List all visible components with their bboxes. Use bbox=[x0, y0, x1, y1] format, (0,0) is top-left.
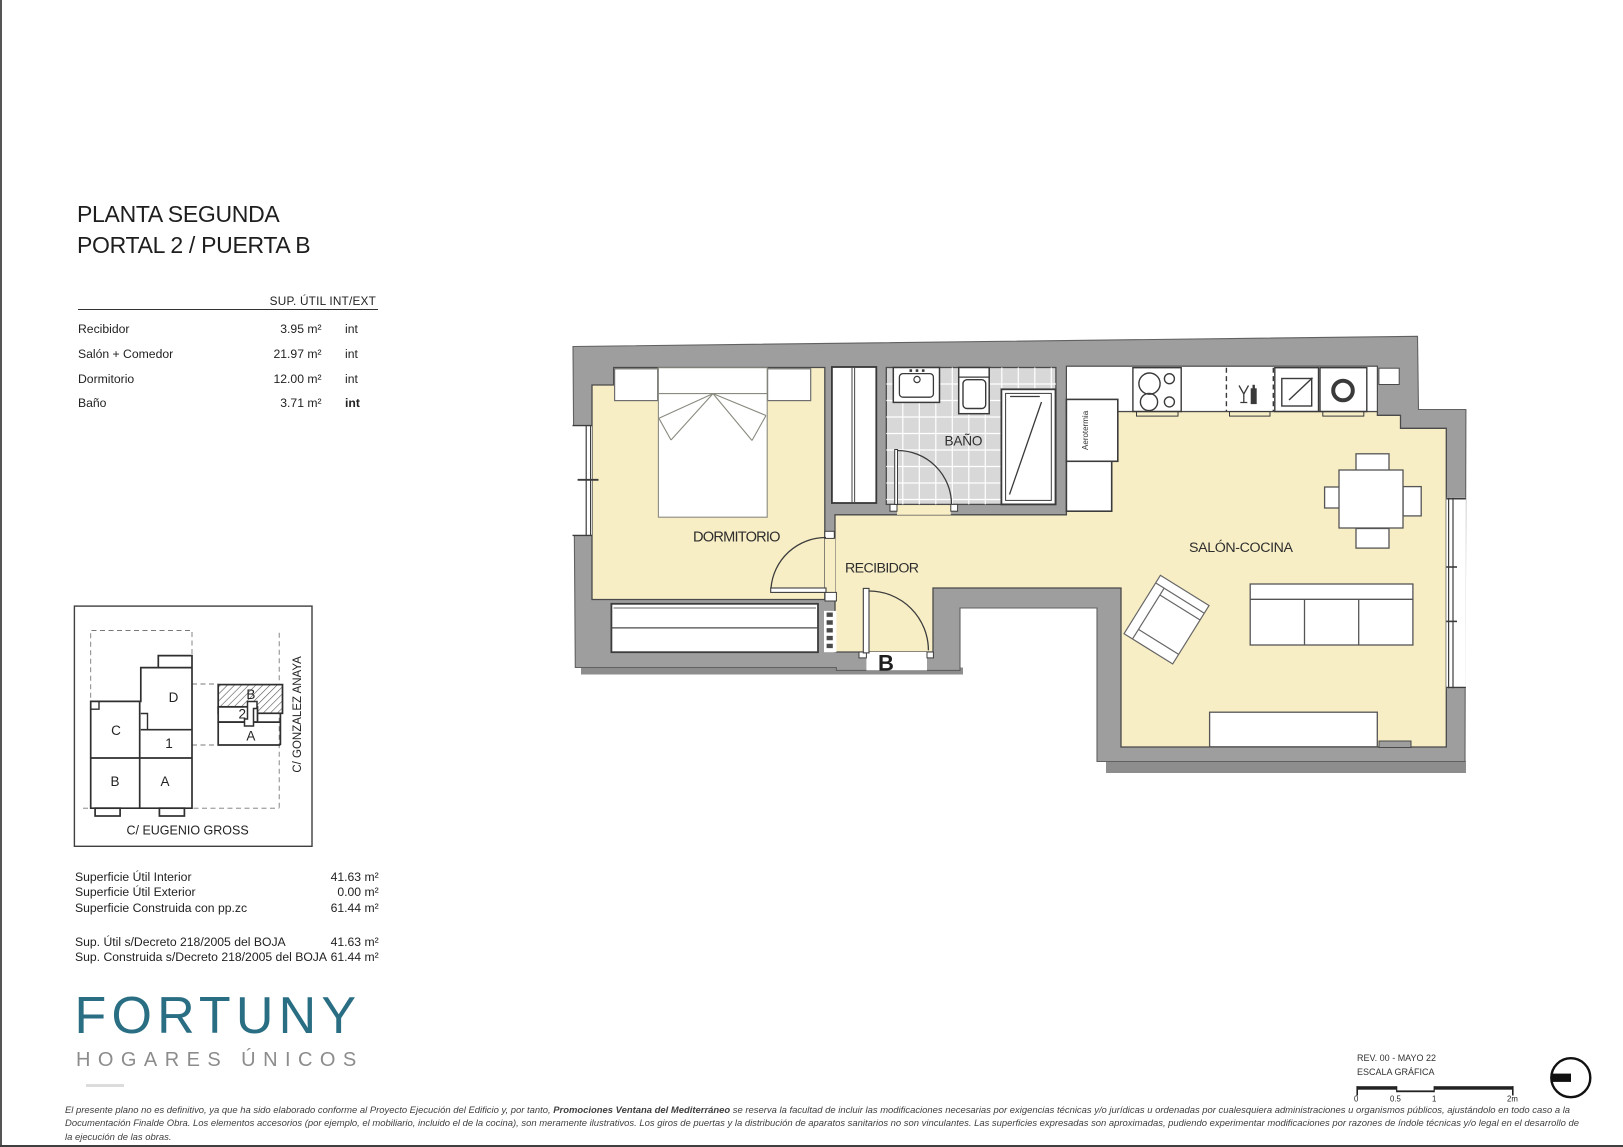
svg-text:A: A bbox=[160, 774, 169, 789]
svg-text:0: 0 bbox=[1354, 1095, 1359, 1104]
svg-text:SALÓN-COCINA: SALÓN-COCINA bbox=[1189, 539, 1294, 556]
svg-text:C/ GONZALEZ ANAYA: C/ GONZALEZ ANAYA bbox=[292, 656, 304, 773]
svg-text:B: B bbox=[110, 774, 119, 789]
svg-text:C/ EUGENIO GROSS: C/ EUGENIO GROSS bbox=[126, 824, 248, 838]
svg-text:C: C bbox=[111, 723, 121, 738]
svg-text:1: 1 bbox=[1432, 1095, 1436, 1104]
svg-text:A: A bbox=[246, 729, 255, 744]
svg-text:B: B bbox=[246, 687, 255, 702]
svg-text:0.5: 0.5 bbox=[1390, 1095, 1402, 1104]
svg-text:2: 2 bbox=[238, 707, 246, 722]
svg-text:Aerotermia: Aerotermia bbox=[1081, 410, 1090, 450]
svg-text:BAÑO: BAÑO bbox=[945, 433, 983, 448]
svg-text:B: B bbox=[878, 650, 894, 675]
svg-text:1: 1 bbox=[165, 736, 173, 751]
svg-text:RECIBIDOR: RECIBIDOR bbox=[845, 561, 919, 577]
svg-text:D: D bbox=[169, 690, 179, 705]
svg-text:2m: 2m bbox=[1507, 1095, 1518, 1104]
svg-text:DORMITORIO: DORMITORIO bbox=[693, 530, 781, 546]
